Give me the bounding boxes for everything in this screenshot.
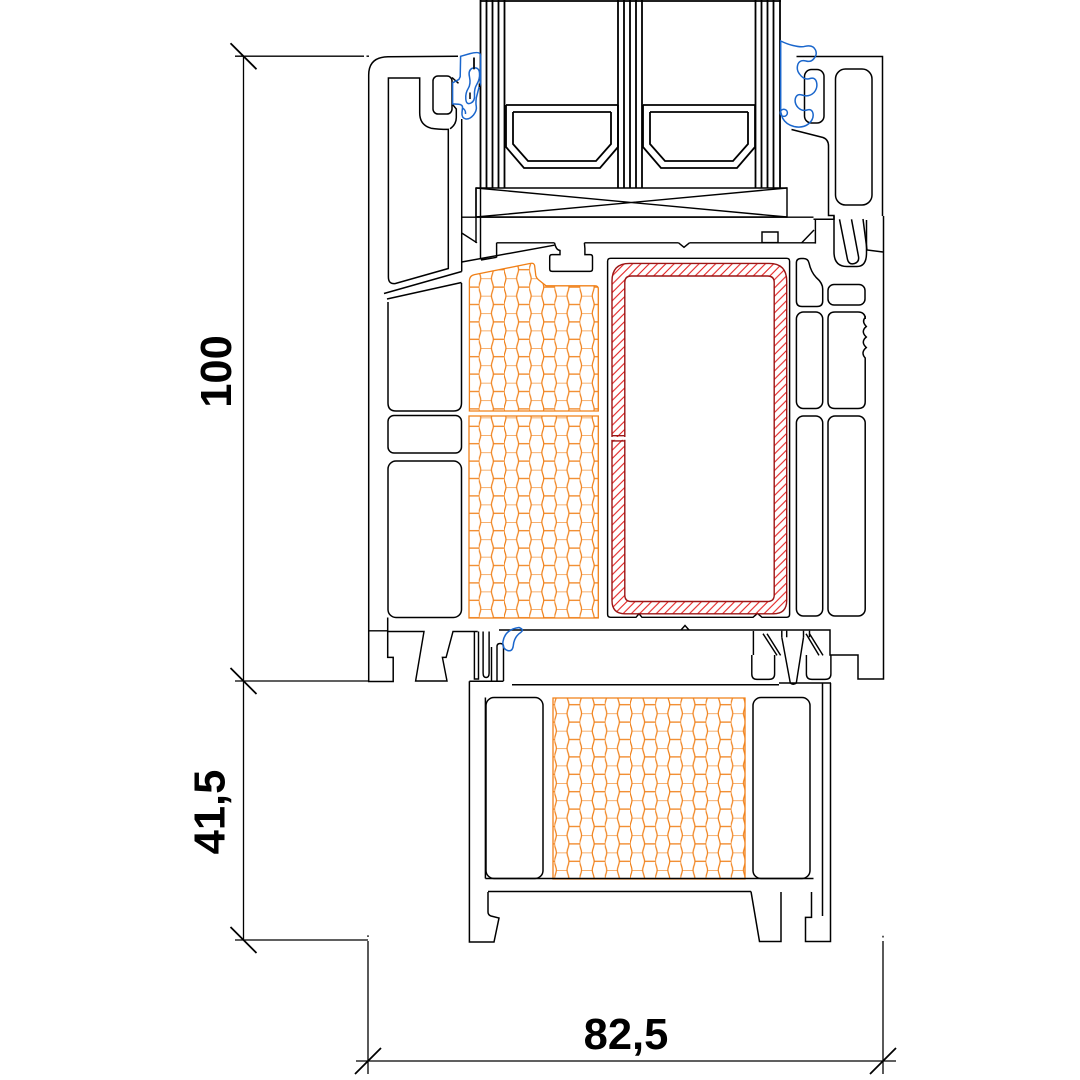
svg-text:82,5: 82,5: [584, 1011, 669, 1059]
svg-text:41,5: 41,5: [187, 770, 235, 855]
svg-text:100: 100: [193, 335, 241, 408]
